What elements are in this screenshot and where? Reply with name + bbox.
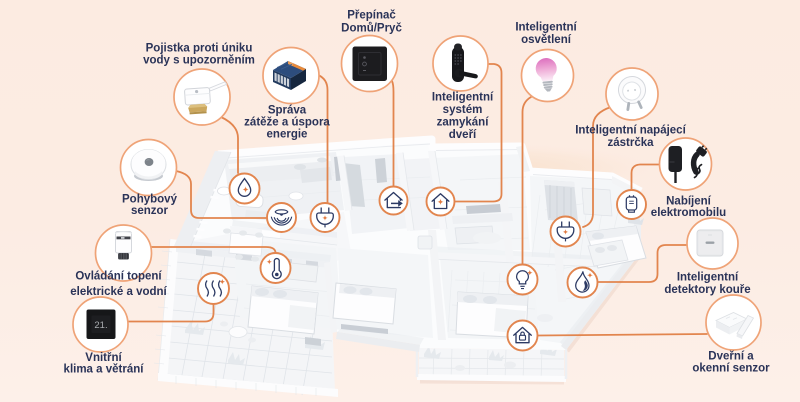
- svg-text:dveří: dveří: [449, 129, 477, 141]
- svg-text:senzor: senzor: [131, 205, 169, 217]
- svg-text:Inteligentní napájecí: Inteligentní napájecí: [575, 124, 686, 136]
- svg-text:Pojistka proti úniku: Pojistka proti úniku: [146, 43, 253, 55]
- svg-text:Inteligentní: Inteligentní: [515, 21, 577, 33]
- svg-text:osvětlení: osvětlení: [521, 34, 572, 46]
- svg-text:detektory kouře: detektory kouře: [664, 284, 750, 296]
- svg-text:Domů/Pryč: Domů/Pryč: [341, 22, 402, 34]
- svg-text:zamykání: zamykání: [437, 117, 490, 129]
- svg-text:zástrčka: zástrčka: [607, 137, 654, 149]
- svg-text:Vnitřní: Vnitřní: [85, 352, 122, 364]
- svg-text:Inteligentní: Inteligentní: [432, 92, 494, 104]
- svg-text:Správa: Správa: [268, 104, 307, 116]
- svg-text:zátěže a úspora: zátěže a úspora: [244, 116, 330, 128]
- svg-text:klima a větrání: klima a větrání: [64, 364, 145, 376]
- svg-text:Přepínač: Přepínač: [347, 9, 396, 21]
- svg-text:Dveřní a: Dveřní a: [708, 350, 754, 362]
- svg-text:Ovládání topení: Ovládání topení: [75, 271, 162, 283]
- svg-text:systém: systém: [443, 104, 483, 116]
- svg-text:elektrické a vodní: elektrické a vodní: [70, 286, 167, 298]
- svg-text:elektromobilu: elektromobilu: [651, 207, 726, 219]
- svg-text:Nabíjení: Nabíjení: [666, 195, 712, 207]
- svg-text:Inteligentní: Inteligentní: [677, 271, 739, 283]
- svg-text:21.: 21.: [94, 320, 107, 331]
- svg-text:Pohybový: Pohybový: [122, 194, 178, 206]
- svg-text:energie: energie: [267, 128, 308, 140]
- svg-text:vody s upozorněním: vody s upozorněním: [143, 55, 255, 67]
- svg-text:okenní senzor: okenní senzor: [692, 363, 770, 375]
